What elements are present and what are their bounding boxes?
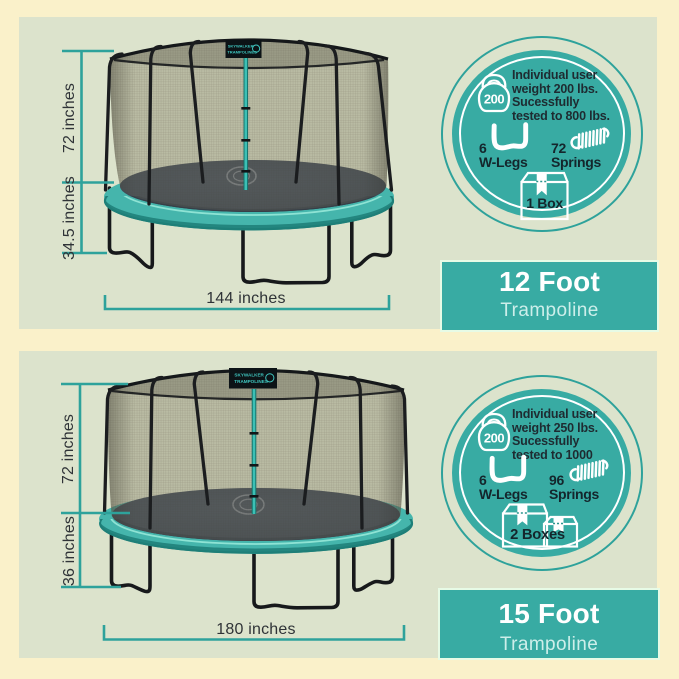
svg-text:200: 200 xyxy=(484,92,504,107)
svg-text:200: 200 xyxy=(484,431,504,446)
